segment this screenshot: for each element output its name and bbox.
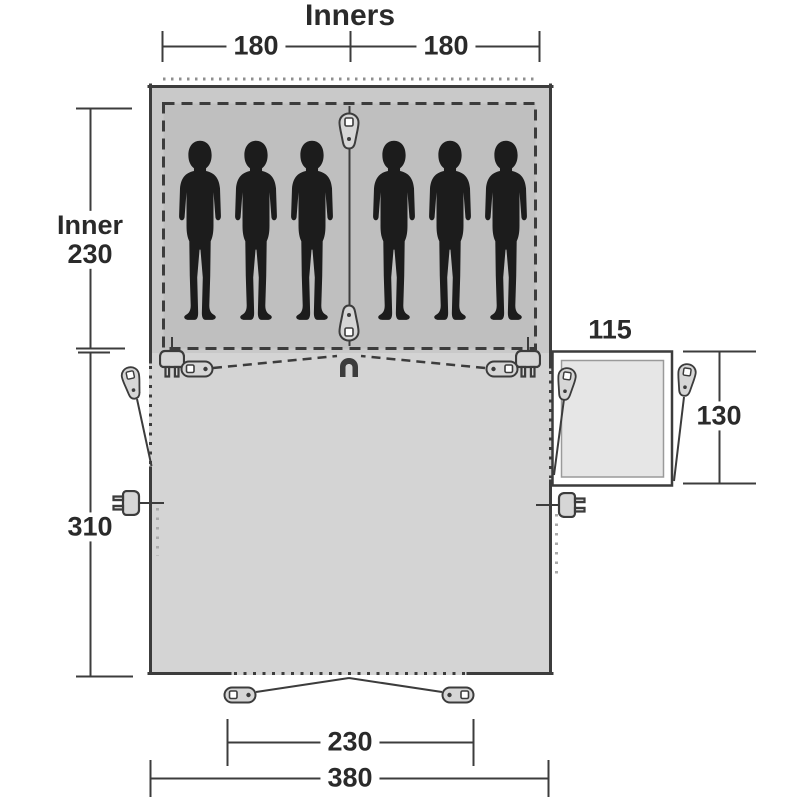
guy-peg-icon [120, 366, 144, 401]
plug-icon [559, 493, 585, 517]
left-door-peg [120, 366, 151, 466]
dim-inner-widths [162, 31, 540, 62]
annex-groundsheet [562, 361, 664, 478]
dim-label-door-width: 230 [320, 727, 379, 756]
guy-peg-icon [443, 688, 474, 703]
guy-peg-icon [675, 363, 697, 397]
guy-peg-icon [225, 688, 256, 703]
plug-icon [114, 491, 140, 515]
toggle-peg-icon [487, 362, 518, 377]
floorplan-drawing [0, 0, 800, 800]
dim-label-annex-width: 115 [581, 315, 639, 344]
zipper-pull-icon [340, 114, 359, 149]
dim-label-inner-depth-word: Inner [57, 211, 123, 240]
side-annex [553, 352, 697, 486]
dim-label-total-width: 380 [320, 763, 379, 792]
tent-floorplan-diagram: Inners 180 180 Inner 230 310 115 130 230… [0, 0, 800, 800]
front-door-guys [225, 678, 474, 703]
diagram-title: Inners [305, 0, 395, 32]
dim-label-inner-depth-value: 230 [57, 240, 123, 269]
toggle-peg-icon [182, 362, 213, 377]
living-area [149, 353, 552, 675]
dim-label-living-depth: 310 [60, 512, 119, 541]
dim-label-inner-width-left: 180 [226, 31, 285, 60]
dim-label-inner-width-right: 180 [416, 31, 475, 60]
zipper-pull-icon [340, 306, 359, 341]
dim-label-inner-depth: Inner 230 [50, 211, 130, 269]
dim-label-annex-depth: 130 [689, 401, 748, 430]
